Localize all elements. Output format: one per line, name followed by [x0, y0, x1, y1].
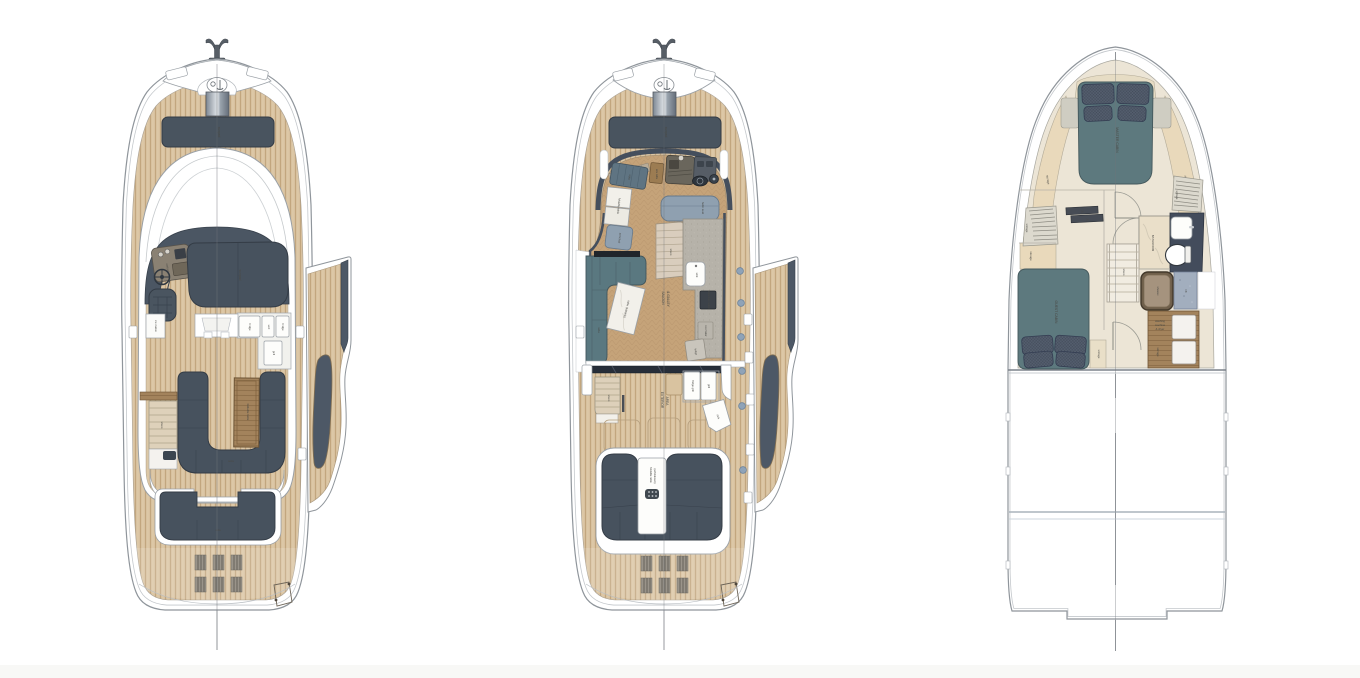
svg-text:sofa: sofa: [228, 459, 234, 463]
svg-text:side table: side table: [655, 169, 658, 180]
svg-text:helm seat: helm seat: [701, 202, 705, 214]
svg-text:induction cooker: induction cooker: [707, 291, 710, 309]
svg-text:(unfoldeown): (unfoldeown): [653, 469, 657, 484]
svg-text:shower: shower: [1156, 286, 1160, 295]
svg-text:storage: storage: [1029, 251, 1033, 261]
svg-text:storage: storage: [1156, 348, 1160, 357]
svg-text:storage: storage: [1025, 224, 1029, 233]
svg-text:stairs: stairs: [607, 395, 611, 402]
svg-text:stairs: stairs: [1122, 269, 1126, 276]
svg-text:grill: grill: [272, 351, 276, 356]
svg-text:& dryer: & dryer: [1156, 327, 1165, 331]
svg-text:sunpad: sunpad: [217, 127, 221, 138]
svg-text:fridge grill: fridge grill: [691, 380, 695, 392]
svg-text:storage: storage: [1097, 350, 1101, 359]
svg-text:ice maker: ice maker: [154, 320, 158, 332]
svg-text:sofa: sofa: [597, 327, 601, 333]
svg-text:& GALLEY: & GALLEY: [666, 291, 670, 307]
svg-text:grill: grill: [707, 384, 711, 388]
svg-text:unit: unit: [267, 325, 271, 330]
svg-text:TV: TV: [1085, 217, 1089, 221]
svg-text:stairs: stairs: [669, 249, 673, 256]
svg-text:sunpad: sunpad: [664, 127, 668, 138]
svg-text:stairs: stairs: [160, 422, 164, 429]
svg-text:machine: machine: [1155, 323, 1166, 327]
svg-text:EXTERIOR: EXTERIOR: [660, 392, 664, 409]
svg-text:fridge: fridge: [281, 324, 285, 331]
svg-text:washing: washing: [1155, 319, 1165, 323]
svg-text:foldable table: foldable table: [649, 467, 653, 483]
svg-text:sofa: sofa: [215, 528, 221, 532]
svg-text:ice maker: ice maker: [704, 326, 707, 337]
svg-text:SALOON: SALOON: [661, 291, 665, 305]
svg-text:foldable table: foldable table: [246, 404, 250, 421]
svg-text:BATHROOM: BATHROOM: [1151, 235, 1155, 252]
svg-text:sink: sink: [695, 273, 699, 278]
svg-text:sunpad: sunpad: [238, 269, 242, 280]
svg-text:lift: lift: [1184, 290, 1188, 293]
svg-text:AREA: AREA: [665, 397, 669, 407]
svg-text:TV: TV: [1080, 209, 1084, 213]
svg-text:GUEST CABIN: GUEST CABIN: [1054, 301, 1058, 324]
svg-text:storage: storage: [1175, 191, 1179, 200]
svg-text:fridge: fridge: [248, 324, 252, 331]
